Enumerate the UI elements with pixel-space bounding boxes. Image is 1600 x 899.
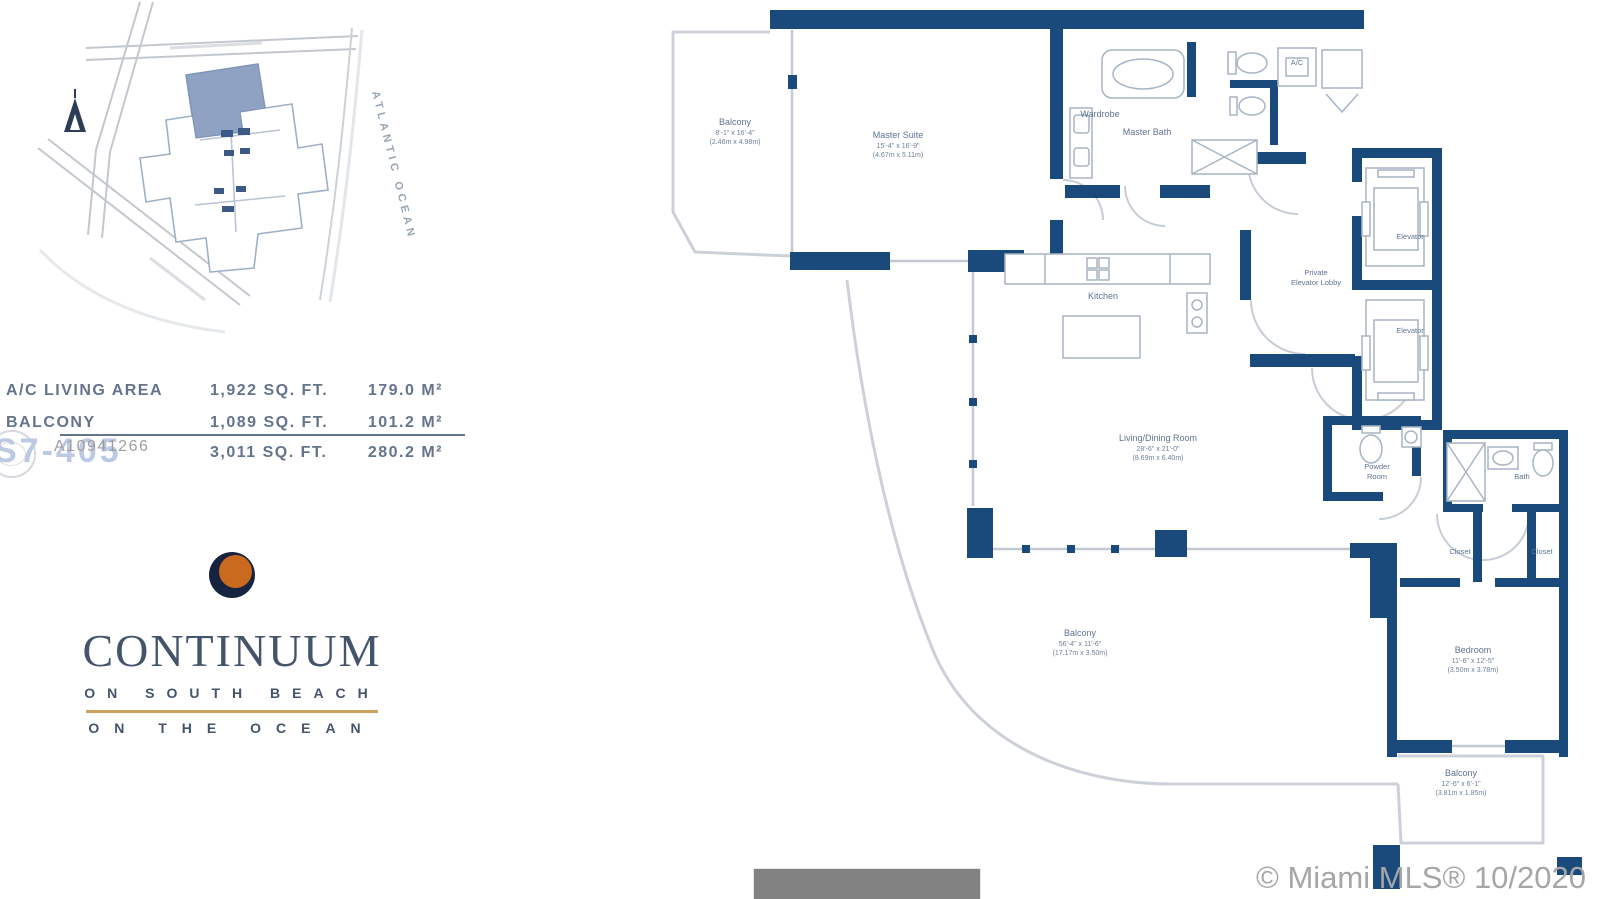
room-name: Bath <box>1497 472 1547 482</box>
room-dim-ft: 15'-4" x 16'-9" <box>833 142 963 151</box>
room-label-private-lobby: Private Elevator Lobby <box>1271 268 1361 288</box>
room-dim-m: (4.67m x 5.11m) <box>833 151 963 160</box>
room-name: Living/Dining Room <box>1093 433 1223 445</box>
room-label-elevator-2: Elevator <box>1380 326 1440 336</box>
room-dim-m: (3.81m x 1.85m) <box>1401 789 1521 798</box>
north-arrow-icon <box>64 89 86 132</box>
floorplan-page: ATLANTIC OCEAN A/C LIVING AREA 1,922 SQ.… <box>0 0 1600 899</box>
toilet-icon <box>1228 52 1267 74</box>
room-dim-ft: 12'-6" x 6'-1" <box>1401 780 1521 789</box>
room-name: Balcony <box>1020 628 1140 640</box>
room-label-master-bath: Master Bath <box>1104 127 1190 139</box>
room-label-wardrobe: Wardrobe <box>1060 109 1140 121</box>
room-name: Powder <box>1347 462 1407 472</box>
room-name: Elevator Lobby <box>1271 278 1361 288</box>
shower-icon <box>1192 140 1257 174</box>
kitchen-island-icon <box>1063 316 1140 358</box>
area-sqft: 1,089 SQ. FT. <box>206 414 348 432</box>
room-name: Balcony <box>675 117 795 129</box>
room-name: Private <box>1271 268 1361 278</box>
bidet-icon <box>1230 97 1265 115</box>
continuum-logo: CONTINUUM ON SOUTH BEACH ON THE OCEAN <box>72 552 392 736</box>
elevator-icon <box>1362 168 1428 266</box>
room-name: Kitchen <box>1063 291 1143 303</box>
logo-tagline-1: ON SOUTH BEACH <box>72 685 392 701</box>
room-name: Closet <box>1514 547 1570 557</box>
room-name: Room <box>1347 472 1407 482</box>
eclipse-icon <box>209 552 255 598</box>
mls-credit-watermark: © Miami MLS® 10/2020 <box>1256 860 1586 896</box>
area-label: A/C LIVING AREA <box>0 382 206 400</box>
room-name: Balcony <box>1401 768 1521 780</box>
site-map: ATLANTIC OCEAN <box>0 0 430 340</box>
room-label-kitchen: Kitchen <box>1063 291 1143 303</box>
powder-toilet-icon <box>1360 426 1382 463</box>
table-row: BALCONY 1,089 SQ. FT. 101.2 M² <box>0 414 470 432</box>
room-dim-m: (17.17m x 3.50m) <box>1020 649 1140 658</box>
room-label-bath: Bath <box>1497 472 1547 482</box>
logo-tagline-2: ON THE OCEAN <box>72 720 392 736</box>
room-label-balcony-bedroom: Balcony 12'-6" x 6'-1" (3.81m x 1.85m) <box>1401 768 1521 798</box>
bath-shower-icon <box>1447 443 1485 501</box>
room-label-bedroom: Bedroom 11'-6" x 12'-5" (3.50m x 3.78m) <box>1418 645 1528 675</box>
area-metric: 280.2 M² <box>348 444 443 462</box>
room-dim-ft: 11'-6" x 12'-5" <box>1418 657 1528 666</box>
area-sqft: 3,011 SQ. FT. <box>206 444 348 462</box>
mls-id-watermark: A10941266 <box>54 438 149 456</box>
logo-name: CONTINUUM <box>72 624 392 677</box>
room-name: Closet <box>1432 547 1488 557</box>
area-label: BALCONY <box>0 414 206 432</box>
room-dim-ft: 28'-6" x 21'-0" <box>1093 445 1223 454</box>
area-sqft: 1,922 SQ. FT. <box>206 382 348 400</box>
logo-gold-rule <box>86 710 378 713</box>
chute-icon <box>1322 50 1362 112</box>
powder-sink-icon <box>1402 427 1421 447</box>
room-name: Elevator <box>1380 326 1440 336</box>
room-name: Bedroom <box>1418 645 1528 657</box>
redacted-block <box>753 868 981 899</box>
bath-sink-icon <box>1488 447 1518 469</box>
room-name: Master Suite <box>833 130 963 142</box>
room-dim-m: (3.50m x 3.78m) <box>1418 666 1528 675</box>
table-row: A/C LIVING AREA 1,922 SQ. FT. 179.0 M² <box>0 382 470 400</box>
room-label-elevator-1: Elevator <box>1380 232 1440 242</box>
room-label-balcony-master: Balcony 8'-1" x 16'-4" (2.46m x 4.98m) <box>675 117 795 147</box>
area-metric: 101.2 M² <box>348 414 443 432</box>
room-label-living-dining: Living/Dining Room 28'-6" x 21'-0" (8.69… <box>1093 433 1223 463</box>
room-dim-ft: 8'-1" x 16'-4" <box>675 129 795 138</box>
room-name: Master Bath <box>1104 127 1190 139</box>
room-name: Wardrobe <box>1060 109 1140 121</box>
room-label-ac-closet: A/C <box>1280 58 1314 68</box>
bathtub-icon <box>1102 50 1184 98</box>
elevator-icon <box>1362 300 1428 400</box>
room-label-balcony-main: Balcony 56'-4" x 11'-6" (17.17m x 3.50m) <box>1020 628 1140 658</box>
room-name: A/C <box>1280 58 1314 68</box>
area-metric: 179.0 M² <box>348 382 443 400</box>
room-dim-m: (2.46m x 4.98m) <box>675 138 795 147</box>
room-label-closet-1: Closet <box>1432 547 1488 557</box>
room-label-master-suite: Master Suite 15'-4" x 16'-9" (4.67m x 5.… <box>833 130 963 160</box>
room-label-powder-room: Powder Room <box>1347 462 1407 482</box>
room-label-closet-2: Closet <box>1514 547 1570 557</box>
room-name: Elevator <box>1380 232 1440 242</box>
room-dim-ft: 56'-4" x 11'-6" <box>1020 640 1140 649</box>
kitchen-sink-icon <box>1187 293 1207 333</box>
room-dim-m: (8.69m x 6.40m) <box>1093 454 1223 463</box>
atlantic-ocean-label: ATLANTIC OCEAN <box>369 90 418 241</box>
